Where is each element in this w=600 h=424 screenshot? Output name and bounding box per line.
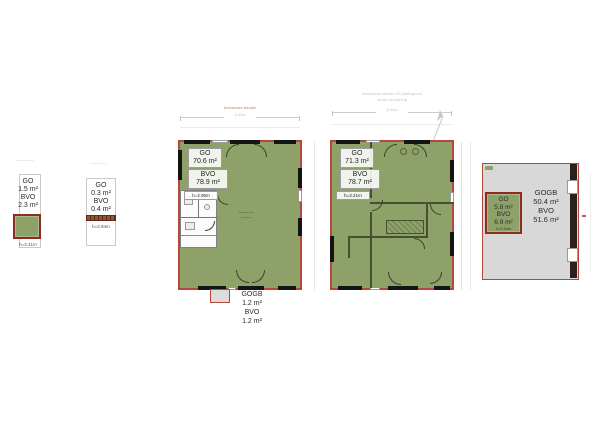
faint-room-label — [241, 217, 251, 218]
wall-segment — [338, 286, 362, 290]
plan-d-header-line2: derde verdieping — [330, 98, 454, 103]
dim-tick — [451, 111, 452, 116]
go-label: GO — [78, 182, 124, 190]
door-arc — [384, 144, 397, 157]
wall-segment — [434, 286, 450, 290]
dim-label: 8.43m — [376, 108, 408, 113]
fixture — [400, 148, 407, 155]
plan-c-note: bestaande situatie — [178, 106, 302, 111]
height-note: h=2.94m — [78, 224, 124, 229]
door-arc — [430, 204, 441, 215]
dim-tick — [180, 116, 181, 121]
bvo-chip: BVO 78.9 m² — [188, 169, 228, 189]
window — [298, 190, 302, 202]
faint-dim-mark — [16, 160, 34, 161]
go-area-box: GO 5.8 m² BVO 6.9 m² h=2.64m — [485, 192, 522, 234]
interior-wall — [181, 217, 218, 218]
vertical-dim-line — [590, 172, 591, 272]
gogb-value: 1.2 m² — [232, 299, 272, 308]
fixture — [204, 204, 210, 210]
go-chip: GO 70.6 m² — [188, 148, 222, 168]
wall-segment — [450, 160, 454, 182]
go-value: 5.8 m² — [487, 204, 520, 212]
bvo-value: 2.3 m² — [6, 202, 50, 210]
interior-wall — [181, 235, 218, 236]
go-value: 0.3 m² — [78, 190, 124, 198]
green-mark — [485, 166, 493, 170]
door-arc — [226, 144, 239, 157]
wall-segment — [450, 232, 454, 256]
height-chip: h=3.21m — [336, 191, 370, 200]
door-arc — [372, 200, 383, 211]
wall-segment — [388, 286, 418, 290]
window — [212, 140, 228, 143]
go-chip: GO 71.3 m² — [340, 148, 374, 168]
plan-c: GO 70.6 m² BVO 78.9 m² h=3.06m — [178, 140, 302, 290]
fixture — [185, 222, 195, 230]
height-note: h=3.41m — [6, 242, 50, 247]
bvo-label: BVO — [78, 198, 124, 206]
plan-a-labels: GO 1.5 m² BVO 2.3 m² — [6, 178, 50, 210]
plan-a: GO 1.5 m² BVO 2.3 m² h=3.41m — [6, 168, 50, 260]
wall-segment — [336, 140, 360, 144]
go-box-labels: GO 5.8 m² BVO 6.9 m² — [487, 196, 520, 226]
gogb-label: GOGB — [519, 188, 573, 197]
gogb-label: GOGB — [232, 290, 272, 299]
plan-e: GO 5.8 m² BVO 6.9 m² h=2.64m GOGB 50.4 m… — [482, 163, 579, 280]
go-label: GO — [343, 150, 371, 158]
plan-c-sub-dimension — [180, 127, 300, 128]
floorplan-sheet: GO 1.5 m² BVO 2.3 m² h=3.41m GO 0.3 m² B… — [0, 0, 600, 424]
interior-wall — [370, 212, 372, 288]
wall-segment — [278, 286, 296, 290]
go-area-box — [13, 214, 41, 239]
plan-b-labels: GO 0.3 m² BVO 0.4 m² — [78, 182, 124, 214]
door-arc — [430, 272, 442, 284]
go-label: GO — [487, 196, 520, 204]
vertical-dim-line — [314, 142, 315, 290]
door-arc — [254, 144, 267, 157]
bvo-value: 6.9 m² — [487, 219, 520, 227]
plan-b: GO 0.3 m² BVO 0.4 m² h=2.94m — [78, 170, 124, 260]
vertical-dim-line — [461, 142, 462, 290]
wall-segment — [274, 140, 296, 144]
bvo-value: 0.4 m² — [78, 206, 124, 214]
door-arc — [217, 194, 228, 205]
plan-c-annex-labels: GOGB 1.2 m² BVO 1.2 m² — [232, 290, 272, 326]
plan-c-dimension-line: 8.43m — [180, 117, 300, 118]
bvo-label: BVO — [519, 206, 573, 215]
bvo-label: BVO — [191, 171, 225, 179]
interior-wall — [426, 202, 428, 238]
bvo-label: BVO — [487, 211, 520, 219]
interior-wall — [348, 236, 350, 258]
gogb-value: 50.4 m² — [519, 197, 573, 206]
plan-d: GO 71.3 m² BVO 78.7 m² h=3.21m — [330, 140, 454, 290]
bvo-value: 78.7 m² — [343, 179, 377, 187]
go-value: 70.6 m² — [191, 158, 219, 166]
wall-segment — [298, 218, 302, 236]
door-arc — [205, 221, 215, 231]
plan-d-header-line1: bestaande situatie 2D plattegrond — [330, 92, 454, 97]
bvo-value: 78.9 m² — [191, 179, 225, 187]
door-arc — [388, 272, 401, 285]
window — [366, 140, 380, 143]
go-label: GO — [191, 150, 219, 158]
window — [567, 248, 578, 262]
bvo-value: 1.2 m² — [232, 317, 272, 326]
bvo-label: BVO — [343, 171, 377, 179]
bvo-label: BVO — [232, 308, 272, 317]
red-tick-mark — [582, 215, 586, 217]
wall-segment — [298, 168, 302, 188]
height-note: h=2.64m — [487, 226, 520, 231]
dim-tick — [299, 116, 300, 121]
bvo-value: 51.6 m² — [519, 215, 573, 224]
dim-label: 8.43m — [224, 113, 256, 118]
dim-tick — [332, 111, 333, 116]
go-value: 1.5 m² — [6, 186, 50, 194]
fixture — [412, 148, 419, 155]
bathroom-fixture — [386, 220, 424, 234]
plan-e-labels: GOGB 50.4 m² BVO 51.6 m² — [519, 188, 573, 224]
go-label: GO — [6, 178, 50, 186]
bvo-label: BVO — [6, 194, 50, 202]
stairs-bar — [86, 215, 116, 221]
wall-segment — [330, 236, 334, 262]
wall-segment — [178, 150, 182, 180]
faint-dim-mark — [90, 163, 106, 164]
vertical-dim-line — [470, 142, 471, 290]
height-chip: h=3.06m — [184, 191, 218, 200]
go-value: 71.3 m² — [343, 158, 371, 166]
faint-room-label — [238, 212, 254, 213]
wall-segment — [184, 140, 210, 144]
door-arc — [414, 238, 425, 249]
bvo-chip: BVO 78.7 m² — [340, 169, 380, 189]
door-arc — [252, 270, 265, 283]
gogb-annex-box — [210, 289, 230, 303]
door-arc — [236, 270, 249, 283]
